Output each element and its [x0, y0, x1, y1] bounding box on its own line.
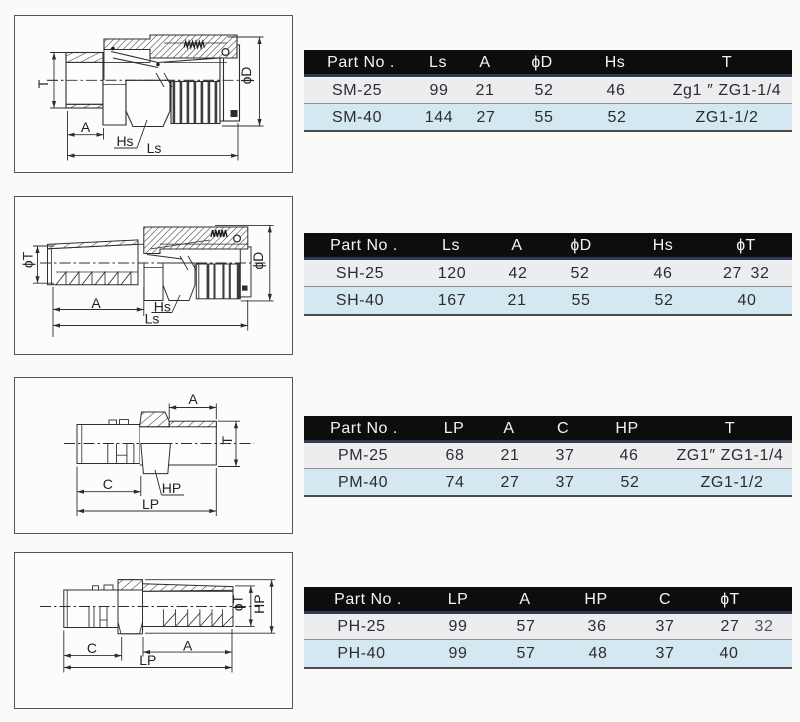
- svg-text:HP: HP: [251, 594, 267, 613]
- svg-text:LP: LP: [139, 652, 156, 668]
- svg-text:ɸT: ɸT: [20, 251, 36, 268]
- svg-text:LP: LP: [142, 496, 159, 512]
- svg-text:Ls: Ls: [147, 140, 162, 156]
- svg-text:Hs: Hs: [116, 133, 133, 149]
- svg-text:A: A: [188, 391, 198, 407]
- svg-text:ɸT: ɸT: [230, 595, 246, 612]
- svg-text:A: A: [91, 295, 101, 311]
- svg-text:Ls: Ls: [145, 311, 160, 327]
- svg-text:ɸD: ɸD: [250, 252, 266, 270]
- svg-text:C: C: [87, 640, 97, 656]
- svg-text:T: T: [35, 79, 51, 88]
- svg-text:HP: HP: [162, 480, 181, 496]
- svg-text:ɸD: ɸD: [238, 67, 254, 85]
- svg-text:A: A: [183, 637, 193, 653]
- svg-text:T: T: [219, 436, 235, 445]
- svg-text:A: A: [81, 119, 91, 135]
- svg-text:C: C: [103, 476, 113, 492]
